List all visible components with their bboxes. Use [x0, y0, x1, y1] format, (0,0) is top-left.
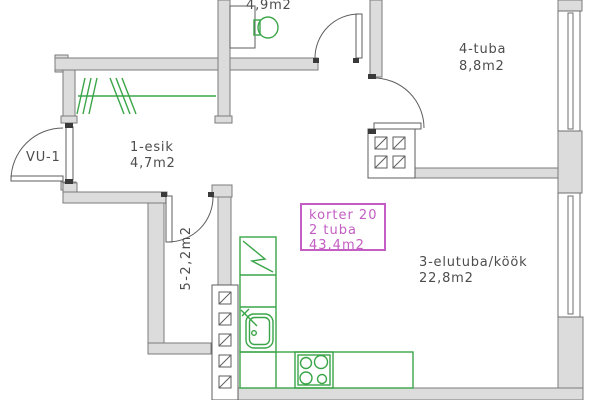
hall-name-label: 1-esik: [130, 140, 174, 155]
apartment-tag-box: korter 20 2 tuba 43,4m2: [300, 203, 386, 251]
wc-area-label: 4,9m2: [246, 0, 292, 13]
vent-shaft-column: [212, 285, 238, 400]
wardrobe-icon: [77, 78, 216, 114]
wall-closet-right: [218, 197, 231, 285]
wall-bath-right: [370, 0, 382, 77]
window-room4: [558, 11, 580, 131]
wall-closet-right-cap: [212, 185, 232, 197]
wall-hall-top: [55, 58, 318, 70]
pier-top-right: [558, 0, 582, 11]
living-name-label: 3-elutuba/köök: [419, 255, 527, 270]
wall-room4-bottom: [415, 168, 558, 178]
kitchen-fixtures: [240, 237, 413, 388]
room4-door: [368, 74, 424, 134]
hall-area-label: 4,7m2: [130, 156, 176, 171]
entrance-door-label: VU-1: [26, 150, 61, 165]
apartment-tag-line3: 43,4m2: [309, 238, 384, 253]
apartment-tag-line2: 2 tuba: [309, 223, 384, 238]
sink-icon: [241, 309, 273, 348]
wall-bath-left-cap: [215, 116, 232, 123]
room4-area-label: 8,8m2: [459, 59, 505, 74]
wall-closet-bottom: [148, 343, 211, 354]
wall-entry-upper: [63, 70, 75, 123]
fridge-icon: [243, 241, 273, 272]
living-area-label: 22,8m2: [419, 271, 474, 286]
stove-icon: [295, 352, 333, 388]
wall-bottom: [238, 388, 583, 400]
floor-plan-canvas: [0, 0, 600, 400]
bathroom-door: [313, 14, 362, 63]
apartment-tag-line1: korter 20: [309, 208, 384, 223]
closet-label: 5-2,2m2: [179, 215, 195, 301]
wall-entry-upper-cap: [61, 116, 77, 123]
pier-mid-right: [558, 131, 582, 193]
window-living: [558, 193, 580, 317]
room4-name-label: 4-tuba: [459, 42, 506, 57]
wall-closet-left: [148, 203, 164, 343]
floor-plan: 4,9m2 4-tuba 8,8m2 1-esik 4,7m2 VU-1 5-2…: [0, 0, 600, 400]
wall-bath-left: [218, 0, 230, 123]
vent-shaft-block: [368, 129, 415, 178]
wall-hall-bottom: [63, 192, 167, 203]
